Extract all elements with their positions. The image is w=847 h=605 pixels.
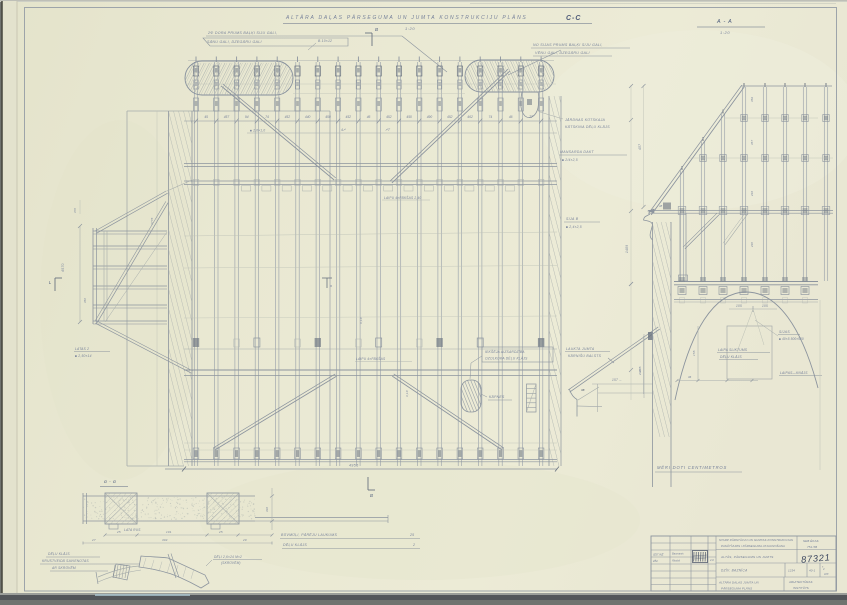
svg-text:4570: 4570 [61,263,65,272]
svg-text:IEKŠĒJA AIZSARDZĪBA: IEKŠĒJA AIZSARDZĪBA [485,349,525,354]
svg-text:■ 2,0×1,0: ■ 2,0×1,0 [250,129,265,133]
svg-text:B: B [370,493,373,498]
svg-text:45: 45 [204,115,208,119]
svg-text:■ 2,50×14: ■ 2,50×14 [75,354,92,358]
svg-text:DĒĻU KLĀJS: DĒĻU KLĀJS [48,552,70,556]
svg-text:40-1: 40-1 [809,569,816,573]
svg-text:240: 240 [750,241,754,248]
svg-text:LAUKTA JUMTA: LAUKTA JUMTA [566,347,595,351]
svg-text:1:20: 1:20 [720,30,730,35]
svg-text:INSTITŪTS: INSTITŪTS [793,586,809,590]
svg-text:2: 2 [412,543,415,547]
svg-text:DĒĻU KLĀJS: DĒĻU KLĀJS [283,543,307,547]
svg-text:B: B [375,27,378,32]
svg-text:BŪVMŪĻI, PĀRĒJU LAUKUMS: BŪVMŪĻI, PĀRĒJU LAUKUMS [281,533,337,537]
svg-text:■ 2/4×2,5: ■ 2/4×2,5 [562,158,578,162]
svg-text:(SKRŪVĒM): (SKRŪVĒM) [221,561,241,565]
svg-text:36: 36 [688,375,692,379]
svg-text:450: 450 [406,115,412,119]
svg-text:SEB ĒKAS: SEB ĒKAS [803,539,819,543]
svg-text:α - α: α - α [104,480,116,485]
svg-text:DZĪV. BAZNĪCA: DZĪV. BAZNĪCA [721,569,748,573]
svg-text:KĀTSKINA DĒĻU KLĀJS: KĀTSKINA DĒĻU KLĀJS [565,125,610,129]
svg-text:a: a [330,284,332,288]
svg-text:74: 74 [265,115,269,119]
svg-text:105: 105 [762,304,768,308]
svg-text:1:20: 1:20 [405,26,415,31]
svg-text:■ 2,4×2,5: ■ 2,4×2,5 [566,225,582,229]
svg-text:751-5B: 751-5B [807,545,817,549]
svg-text:440: 440 [305,115,311,119]
svg-text:B.10×12: B.10×12 [318,39,332,43]
svg-text:2Φ DORA PRUMS BAĻĶI SIJU GALI,: 2Φ DORA PRUMS BAĻĶI SIJU GALI, [207,31,277,35]
svg-text:29: 29 [242,538,247,542]
svg-text:Baumanis: Baumanis [672,552,684,556]
svg-text:SĀNU GALI, DZEGĀRU GALI: SĀNU GALI, DZEGĀRU GALI [207,40,262,44]
svg-text:101: 101 [166,530,172,534]
svg-text:450: 450 [325,115,331,119]
svg-text:OZOLKOKA DĒĻU KLĀJS: OZOLKOKA DĒĻU KLĀJS [485,357,528,361]
svg-text:PĀRSEGUMA PLĀNS: PĀRSEGUMA PLĀNS [721,587,752,591]
svg-text:450: 450 [83,297,87,303]
svg-text:94: 94 [245,115,249,119]
svg-text:418: 418 [265,507,269,512]
svg-text:KĀRNIŠU BALSTS: KĀRNIŠU BALSTS [568,353,602,358]
svg-text:PASŪTĪJUMS i PĀRSEGUMA ATJAUNO: PASŪTĪJUMS i PĀRSEGUMA ATJAUNOŠANA [721,543,785,548]
svg-text:25: 25 [218,530,223,534]
svg-text:SIJA B: SIJA B [566,217,579,221]
svg-text:KRUSTVEIDĀ SAVIENOTAS: KRUSTVEIDĀ SAVIENOTAS [42,559,89,563]
svg-text:457: 457 [638,144,642,150]
svg-text:DĒĻU KLĀJS: DĒĻU KLĀJS [720,355,742,359]
svg-text:2-0: 2-0 [709,558,714,562]
svg-text:STARP PĀRSTĀVJU UN GUMTAS KONS: STARP PĀRSTĀVJU UN GUMTAS KONSTRUKCIJAS [719,538,793,542]
svg-text:4,10: 4,10 [405,390,409,397]
svg-text:452: 452 [386,115,392,119]
svg-text:25: 25 [116,530,121,534]
svg-text:NO SIJAS PRUMS BAĻĶI SIJU GALI: NO SIJAS PRUMS BAĻĶI SIJU GALI, [533,43,603,47]
svg-text:77: 77 [529,115,533,119]
svg-text:SIJAS: SIJAS [779,330,790,334]
svg-text:LATA RUS: LATA RUS [124,528,141,532]
svg-text:38: 38 [581,388,585,392]
svg-text:DĒĻI 2,6×24 M×2: DĒĻI 2,6×24 M×2 [214,555,242,559]
svg-text:ALTĀRA DAĻAS JUMTA UN: ALTĀRA DAĻAS JUMTA UN [718,581,760,585]
svg-text:4955: 4955 [349,464,359,468]
svg-text:240: 240 [638,369,642,376]
svg-text:C-C: C-C [566,15,581,22]
svg-text:LAIPAS—KNĀJS: LAIPAS—KNĀJS [780,371,808,375]
svg-text:457: 457 [750,139,754,145]
svg-text:ALTĀRA DAĻAS PĀRSEGUMA UN: ALTĀRA DAĻAS PĀRSEGUMA UN JUMTA KONSTRUK… [285,14,528,21]
svg-text:25: 25 [409,533,414,537]
svg-text:MĒRI DOTI CENTIMETROS: MĒRI DOTI CENTIMETROS [657,465,727,470]
svg-text:74: 74 [489,115,493,119]
svg-text:4776: 4776 [150,217,154,225]
svg-text:1489: 1489 [625,245,629,253]
svg-text:MANSARDA DAKT: MANSARDA DAKT [560,150,594,154]
svg-text:105: 105 [736,304,742,308]
svg-text:242: 242 [750,190,754,197]
svg-text:304: 304 [162,538,168,542]
svg-text:470: 470 [73,207,77,213]
svg-text:LAIPU 4×PĀKŠAS 2,40: LAIPU 4×PĀKŠAS 2,40 [384,195,421,200]
svg-text:LAIPU 4×PĀKŠAS: LAIPU 4×PĀKŠAS [356,356,386,361]
svg-text:457: 457 [224,115,230,119]
svg-text:LAIPA SLIKTUMS: LAIPA SLIKTUMS [718,348,748,352]
svg-text:157 ←: 157 ← [612,378,622,382]
svg-text:LATAS 2: LATAS 2 [75,347,89,351]
svg-text:452: 452 [447,115,453,119]
svg-text:Ābolņš: Ābolņš [671,559,681,563]
svg-text:46: 46 [509,115,513,119]
svg-text:155: 155 [692,350,696,356]
svg-text:4,10: 4,10 [359,317,363,324]
svg-text:ALTĀS, PĀRSEGUMS UN JUMTS: ALTĀS, PĀRSEGUMS UN JUMTS [720,555,774,559]
svg-text:27: 27 [91,538,96,542]
svg-text:46: 46 [367,115,371,119]
svg-text:■ 40×5 500×500: ■ 40×5 500×500 [779,337,804,341]
svg-text:462: 462 [467,115,473,119]
svg-text:48: 48 [659,204,663,208]
svg-text:4↱: 4↱ [341,128,346,132]
svg-text:452: 452 [285,115,291,119]
svg-text:AR SKRŪVĒM: AR SKRŪVĒM [51,566,76,570]
svg-text:456: 456 [750,96,754,102]
svg-text:490: 490 [427,115,433,119]
svg-text:ARHITEKTŪRAS: ARHITEKTŪRAS [788,580,813,584]
svg-text:ZĪM.: ZĪM. [652,559,658,563]
svg-text:VĒNU GALI, DZEGĀRU GALI: VĒNU GALI, DZEGĀRU GALI [535,51,590,55]
svg-text:KĀPNES: KĀPNES [489,395,505,399]
svg-text:452: 452 [345,115,351,119]
svg-text:A - A: A - A [716,19,733,25]
svg-text:1234: 1234 [788,569,795,573]
svg-text:LPP.: LPP. [824,574,829,576]
svg-text:JĀRDNAS KŪTSKAJA: JĀRDNAS KŪTSKAJA [564,118,606,122]
